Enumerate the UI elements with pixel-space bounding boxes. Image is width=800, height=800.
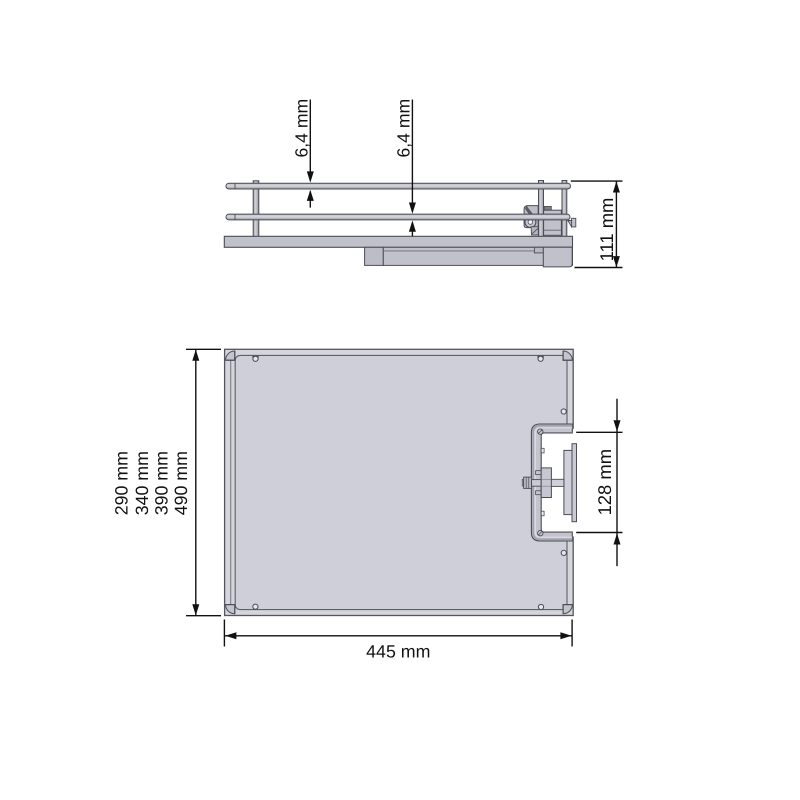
svg-text:6,4 mm: 6,4 mm — [394, 99, 414, 158]
svg-text:340 mm: 340 mm — [132, 451, 152, 515]
svg-text:290 mm: 290 mm — [112, 451, 132, 515]
svg-text:445 mm: 445 mm — [366, 642, 430, 662]
svg-text:128 mm: 128 mm — [594, 449, 615, 515]
svg-text:490 mm: 490 mm — [171, 451, 191, 515]
svg-text:390 mm: 390 mm — [152, 451, 172, 515]
svg-text:6,4 mm: 6,4 mm — [291, 99, 311, 158]
svg-text:111 mm: 111 mm — [596, 198, 617, 262]
